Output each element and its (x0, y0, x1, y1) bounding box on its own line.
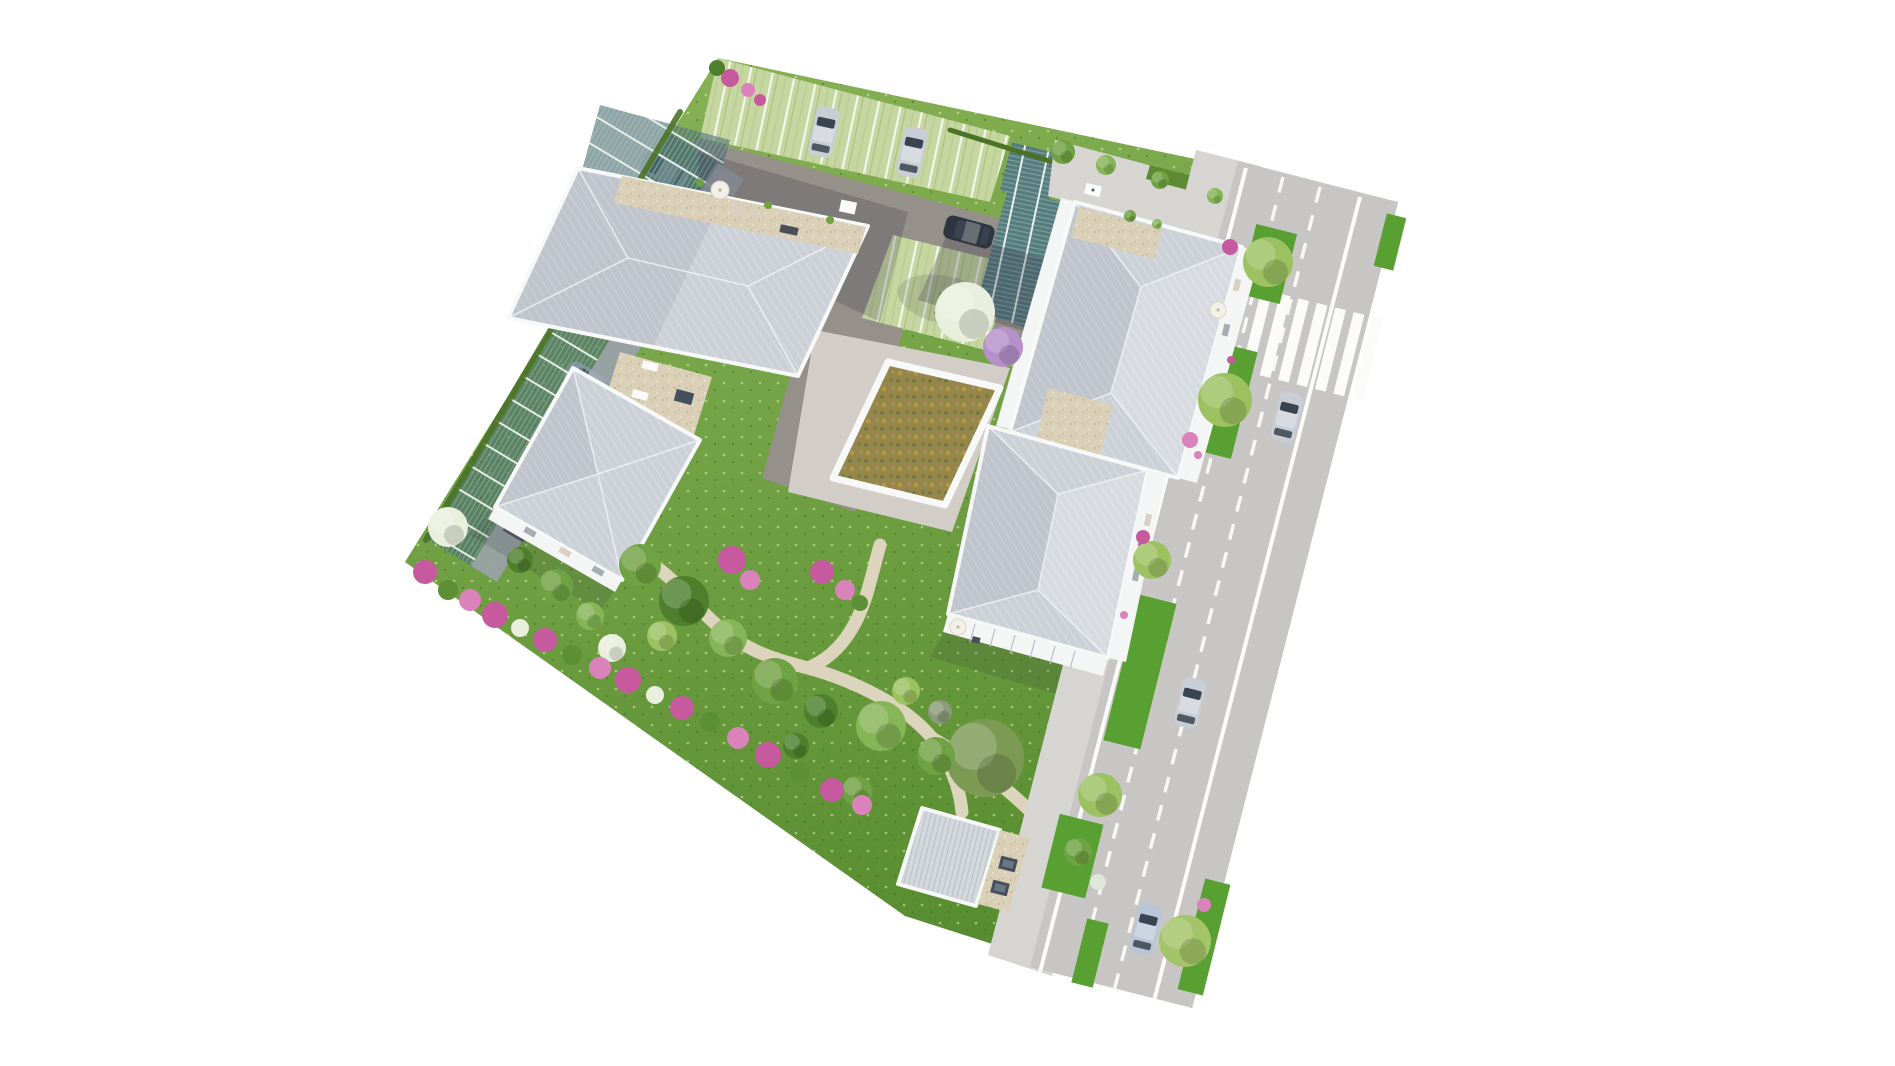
parasol-se-terrace (950, 619, 966, 635)
balcony-flowers-4 (1120, 611, 1128, 619)
site-plan-render (0, 0, 1895, 1066)
lilac-tree (983, 327, 1023, 367)
balcony-flowers-2 (1194, 451, 1202, 459)
parasol-west-terrace (711, 181, 729, 199)
planter-3 (826, 216, 834, 224)
large-olive-tree (946, 719, 1024, 797)
render-canvas (0, 0, 1895, 1066)
planter-2 (764, 201, 772, 209)
balcony-flowers-1 (1227, 356, 1235, 364)
white-flowering-tree-parking (935, 282, 995, 342)
parasol-ne-balcony (1210, 302, 1226, 318)
white-flowering-tree-west (428, 507, 468, 547)
planter-1 (696, 179, 704, 187)
